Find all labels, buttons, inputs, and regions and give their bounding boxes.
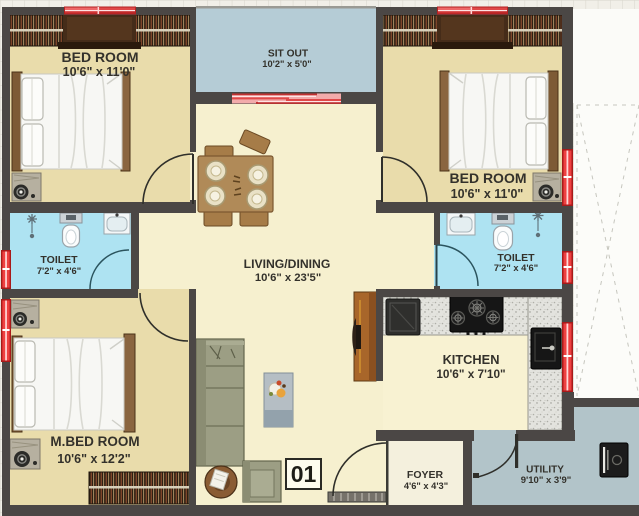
svg-text:10'6" x 12'2": 10'6" x 12'2" (57, 452, 130, 466)
svg-text:7'2" x 4'6": 7'2" x 4'6" (494, 263, 538, 273)
svg-text:BED ROOM: BED ROOM (62, 49, 139, 65)
svg-text:7'2" x 4'6": 7'2" x 4'6" (37, 266, 81, 276)
svg-text:10'2" x 5'0": 10'2" x 5'0" (262, 59, 311, 69)
svg-text:10'6" x 11'0": 10'6" x 11'0" (63, 65, 136, 79)
svg-text:FOYER: FOYER (407, 469, 444, 481)
svg-text:10'6" x 23'5": 10'6" x 23'5" (255, 272, 321, 284)
svg-text:TOILET: TOILET (40, 254, 78, 266)
svg-text:10'6" x 7'10": 10'6" x 7'10" (436, 367, 505, 381)
svg-text:UTILITY: UTILITY (526, 465, 564, 476)
svg-text:M.BED ROOM: M.BED ROOM (50, 434, 139, 449)
svg-text:10'6" x 11'0": 10'6" x 11'0" (451, 187, 524, 201)
svg-text:KITCHEN: KITCHEN (443, 352, 500, 367)
svg-text:SIT OUT: SIT OUT (268, 49, 309, 60)
svg-text:4'6" x 4'3": 4'6" x 4'3" (404, 481, 448, 491)
svg-text:LIVING/DINING: LIVING/DINING (244, 257, 331, 271)
svg-text:01: 01 (291, 461, 317, 487)
svg-text:9'10" x 3'9": 9'10" x 3'9" (521, 475, 572, 486)
svg-text:BED ROOM: BED ROOM (450, 170, 527, 186)
